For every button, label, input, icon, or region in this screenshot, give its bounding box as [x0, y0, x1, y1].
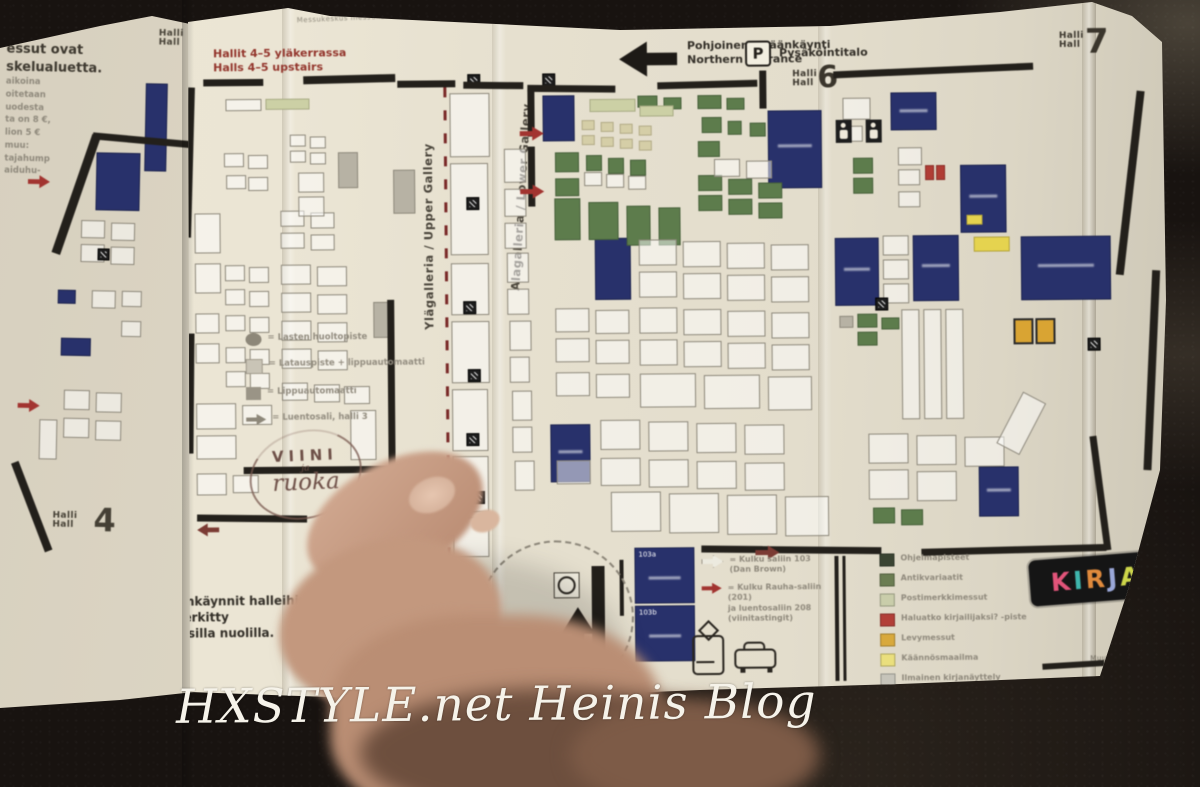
booth — [996, 392, 1046, 455]
booth — [901, 309, 920, 419]
wall — [397, 80, 455, 88]
wc-icon — [866, 120, 882, 143]
booth — [728, 179, 752, 195]
square-dark-icon — [246, 387, 261, 400]
hall-7-label: Halli Hall — [1059, 32, 1084, 50]
booth — [63, 418, 89, 438]
area-color-swatch — [880, 593, 895, 606]
booth — [281, 293, 311, 313]
wall — [657, 80, 757, 90]
wall — [1116, 91, 1145, 276]
booth — [196, 343, 220, 363]
booth — [311, 234, 335, 250]
legend-row: Käännösmaailma — [880, 652, 1030, 666]
booth — [110, 247, 134, 265]
booth — [596, 374, 630, 398]
upper-gallery-label: Ylägalleria / Upper Gallery — [421, 136, 437, 336]
room-103a: 103a — [634, 547, 694, 604]
area-color-swatch — [880, 613, 895, 626]
booth — [468, 369, 481, 382]
booth — [338, 152, 358, 188]
booth — [248, 155, 268, 169]
wall — [527, 85, 615, 93]
booth — [92, 290, 116, 308]
booth — [640, 339, 678, 365]
booth — [640, 373, 696, 407]
booth — [771, 276, 809, 302]
booth — [225, 265, 245, 281]
booth — [121, 321, 141, 337]
booth — [857, 314, 877, 328]
booth — [1021, 236, 1112, 301]
legend-label: Haluatko kirjailijaksi? -piste — [901, 612, 1027, 623]
hall-7-en: Hall — [1059, 41, 1084, 50]
wall — [1042, 660, 1104, 670]
room-103a-label: 103a — [635, 548, 693, 559]
booth — [1035, 318, 1055, 344]
booth — [883, 259, 909, 279]
booth — [727, 275, 765, 301]
area-color-swatch — [879, 553, 894, 566]
booth — [97, 248, 109, 260]
arrow-icon — [246, 414, 266, 425]
legend-label: = Kulku Rauha-saliin (201)ja luentosalii… — [728, 582, 837, 625]
booth — [600, 420, 640, 450]
legend-label: Ohjelmapisteet — [900, 553, 969, 564]
booth — [727, 311, 765, 337]
booth — [1088, 338, 1101, 351]
kirja-letter: K — [1049, 566, 1074, 597]
booth — [504, 149, 526, 183]
entrance-arrow — [18, 399, 40, 412]
booth — [966, 215, 982, 225]
booth — [698, 175, 722, 191]
booth — [226, 371, 246, 387]
booth — [683, 309, 721, 335]
booth — [58, 290, 76, 304]
booth — [835, 238, 880, 306]
booth — [839, 316, 853, 328]
booth — [936, 165, 945, 180]
booth — [249, 267, 269, 283]
hall-7-number: 7 — [1085, 22, 1109, 62]
booth — [728, 199, 752, 215]
booth — [620, 139, 633, 149]
booth — [197, 473, 227, 495]
booth — [669, 493, 719, 533]
legend-row: Ohjelmapisteet — [879, 552, 1029, 566]
booth — [945, 309, 964, 419]
booth — [582, 120, 595, 130]
legend-label: Levymessut — [901, 633, 955, 644]
booth — [745, 462, 785, 490]
booth — [758, 202, 782, 218]
legend-label: = Lasten huoltopiste — [267, 332, 367, 344]
booth — [225, 315, 245, 331]
booth — [639, 239, 677, 265]
area-color-swatch — [880, 653, 895, 666]
booth — [225, 289, 245, 305]
booth — [555, 308, 589, 332]
booth — [772, 344, 810, 370]
booth — [589, 99, 635, 112]
booth — [601, 137, 614, 147]
booth — [224, 153, 244, 167]
booth — [704, 375, 760, 409]
booth — [608, 158, 624, 174]
hall-4-label: Halli Hall — [52, 512, 77, 530]
booth — [628, 176, 646, 190]
booth — [639, 271, 677, 297]
booth — [726, 98, 744, 110]
booth — [925, 165, 934, 180]
booth — [196, 403, 236, 429]
booth — [466, 197, 479, 210]
upstairs-note-fi: Hallit 4–5 yläkerrassa — [213, 46, 346, 61]
wall — [759, 71, 766, 109]
booth — [639, 105, 673, 116]
booth — [768, 376, 812, 410]
parking-label: Pysäköintitalo — [779, 46, 868, 60]
booth — [144, 83, 168, 171]
booth — [974, 236, 1010, 251]
booth — [542, 95, 574, 141]
booth — [281, 265, 311, 285]
booth — [194, 213, 220, 253]
wall — [833, 63, 1033, 79]
area-color-swatch — [880, 633, 895, 646]
booth — [601, 122, 614, 132]
legend-row: Levymessut — [880, 632, 1030, 646]
tram-icon — [692, 635, 724, 675]
booth — [507, 289, 529, 315]
booth — [317, 294, 347, 314]
booth — [727, 243, 765, 269]
wall — [842, 556, 846, 681]
booth — [556, 372, 590, 396]
blog-watermark: HXSTYLE.net Heinis Blog — [176, 672, 1076, 735]
booth — [595, 238, 632, 300]
entrance-arrow — [197, 523, 219, 536]
legend-row: = Luentosali, halli 3 — [246, 411, 436, 425]
hall-5-label: Halli Hall — [159, 29, 184, 47]
wall — [1143, 270, 1160, 470]
booth — [979, 466, 1019, 516]
legend-row: = Lasten huoltopiste — [245, 331, 435, 346]
booth — [785, 496, 829, 536]
room-103b-label: 103b — [636, 606, 694, 617]
hall-6-en: Hall — [792, 79, 817, 88]
booth — [611, 491, 661, 531]
legend-row: = Latauspiste + lippuautomaatti — [246, 357, 436, 374]
booth — [875, 297, 888, 310]
kirja-letter: R — [1083, 563, 1107, 594]
booth — [857, 332, 877, 346]
booth — [298, 196, 324, 216]
booth — [883, 235, 909, 255]
booth — [512, 391, 532, 421]
booth — [226, 175, 246, 189]
booth — [317, 266, 347, 286]
booth — [595, 310, 629, 334]
booth — [697, 95, 721, 109]
booth — [744, 424, 784, 454]
booth — [281, 233, 305, 249]
booth — [768, 110, 823, 188]
taxi-icon — [734, 648, 776, 668]
legend-label: = Latauspiste + lippuautomaatti — [269, 358, 425, 370]
square-light-icon — [246, 359, 263, 374]
booth — [584, 172, 602, 186]
booth — [225, 99, 261, 111]
hall-5-en: Hall — [159, 38, 184, 47]
booth — [196, 435, 236, 459]
booth — [515, 461, 535, 491]
legend-row: Postimerkkimessut — [880, 592, 1030, 606]
legend-label: = Kulku saliin 103(Dan Brown) — [729, 554, 811, 575]
booth — [698, 141, 720, 157]
legend-row: = Lippuautomaatti — [246, 385, 436, 400]
booth — [554, 198, 580, 240]
booth — [684, 341, 722, 367]
flap-text-line: essut ovat — [6, 41, 126, 61]
booth — [226, 347, 246, 363]
booth — [750, 123, 766, 137]
booth — [195, 313, 219, 333]
booth — [298, 172, 324, 192]
circle-icon — [245, 333, 261, 346]
hall-6-label: Halli Hall — [792, 70, 817, 88]
area-color-swatch — [880, 573, 895, 586]
booth — [505, 223, 527, 249]
wall — [303, 74, 395, 84]
booth — [393, 170, 415, 214]
booth — [639, 141, 652, 151]
booth — [916, 435, 956, 465]
room-103b-text — [649, 634, 682, 637]
booth — [853, 158, 873, 174]
booth — [702, 117, 722, 133]
booth — [649, 459, 689, 487]
booth — [510, 357, 530, 383]
flap-text-line: skelualuetta. — [6, 58, 126, 78]
booth — [95, 152, 140, 211]
booth — [509, 321, 531, 351]
booth — [582, 135, 595, 145]
outline-arrow-icon — [701, 555, 723, 568]
booth — [923, 309, 942, 419]
legend-label: = Lippuautomaatti — [267, 386, 357, 398]
booth — [728, 121, 742, 135]
booth — [290, 135, 306, 147]
booth — [697, 461, 737, 489]
parking-icon: P — [745, 40, 771, 66]
hall-4-en: Hall — [52, 521, 77, 530]
booth — [596, 340, 630, 364]
booth — [463, 301, 476, 314]
booth — [869, 469, 909, 499]
wc-icon — [836, 120, 852, 143]
room-103a-text — [648, 576, 681, 579]
booth — [556, 338, 590, 362]
legend-label: Antikvariaatit — [901, 573, 963, 584]
booth — [898, 147, 922, 165]
booth — [290, 151, 306, 163]
booth — [714, 159, 740, 177]
booth — [1013, 318, 1033, 344]
booth — [588, 202, 618, 240]
booth — [249, 291, 269, 307]
legend-label: = Luentosali, halli 3 — [272, 412, 368, 424]
booth — [917, 471, 957, 501]
booth — [901, 509, 923, 525]
wall — [1089, 436, 1111, 551]
wall — [701, 546, 881, 555]
entrance-arrow — [619, 41, 677, 77]
legend-row: Haluatko kirjailijaksi? -piste — [880, 612, 1030, 626]
booth — [310, 152, 326, 164]
booth — [639, 307, 677, 333]
booth — [683, 241, 721, 267]
booth — [466, 433, 479, 446]
booth — [249, 317, 269, 333]
booth — [81, 220, 105, 238]
booth — [64, 390, 90, 410]
booth — [873, 507, 895, 523]
booth — [95, 420, 121, 440]
booth — [881, 317, 899, 329]
booth — [842, 98, 870, 120]
booth — [39, 419, 58, 459]
booth — [248, 177, 268, 191]
legend-row: = Kulku saliin 103(Dan Brown) — [701, 554, 836, 576]
booth — [601, 458, 641, 486]
booth — [586, 155, 602, 171]
booth — [555, 152, 579, 172]
booth — [555, 178, 579, 196]
booth — [890, 92, 936, 130]
booth — [96, 392, 122, 412]
wall — [11, 461, 52, 553]
booth — [746, 160, 772, 178]
booth — [898, 191, 920, 207]
room-103b: 103b — [635, 605, 695, 662]
booth — [868, 433, 908, 463]
booth — [913, 235, 960, 301]
booth — [639, 126, 652, 136]
booth — [449, 93, 490, 157]
booth — [853, 178, 873, 194]
booth — [771, 312, 809, 338]
upstairs-note: Hallit 4–5 yläkerrassa Halls 4–5 upstair… — [213, 46, 347, 75]
upstairs-note-en: Halls 4–5 upstairs — [213, 60, 346, 75]
booth — [771, 244, 809, 270]
booth — [265, 99, 309, 110]
photo-of-fair-map: essut ovatskelualuetta.aikoina oitetaanu… — [0, 0, 1200, 787]
wall — [463, 82, 523, 90]
booth — [507, 253, 529, 283]
booth — [122, 291, 142, 307]
legend-services: = Lasten huoltopiste= Latauspiste + lipp… — [245, 331, 436, 438]
red-arrow-icon — [702, 583, 722, 594]
booth — [898, 169, 920, 185]
booth — [111, 223, 135, 241]
booth — [727, 494, 777, 534]
booth — [630, 160, 646, 176]
booth — [683, 273, 721, 299]
booth — [620, 124, 633, 134]
legend-row: Antikvariaatit — [880, 572, 1030, 586]
legend-label: Käännösmaailma — [901, 653, 978, 664]
booth — [606, 174, 624, 188]
wall — [203, 79, 263, 87]
legend-row: = Kulku Rauha-saliin (201)ja luentosalii… — [702, 582, 837, 625]
booth — [557, 460, 591, 484]
booth — [310, 136, 326, 148]
legend-routes: = Kulku saliin 103(Dan Brown)= Kulku Rau… — [701, 554, 837, 632]
booth — [512, 427, 532, 453]
booth — [648, 421, 688, 451]
booth — [698, 195, 722, 211]
booth — [61, 338, 91, 357]
hall-4-number: 4 — [93, 504, 116, 536]
booth — [195, 263, 221, 293]
booth — [728, 343, 766, 369]
legend-label: Postimerkkimessut — [901, 593, 988, 604]
booth — [758, 182, 782, 198]
booth — [696, 423, 736, 453]
